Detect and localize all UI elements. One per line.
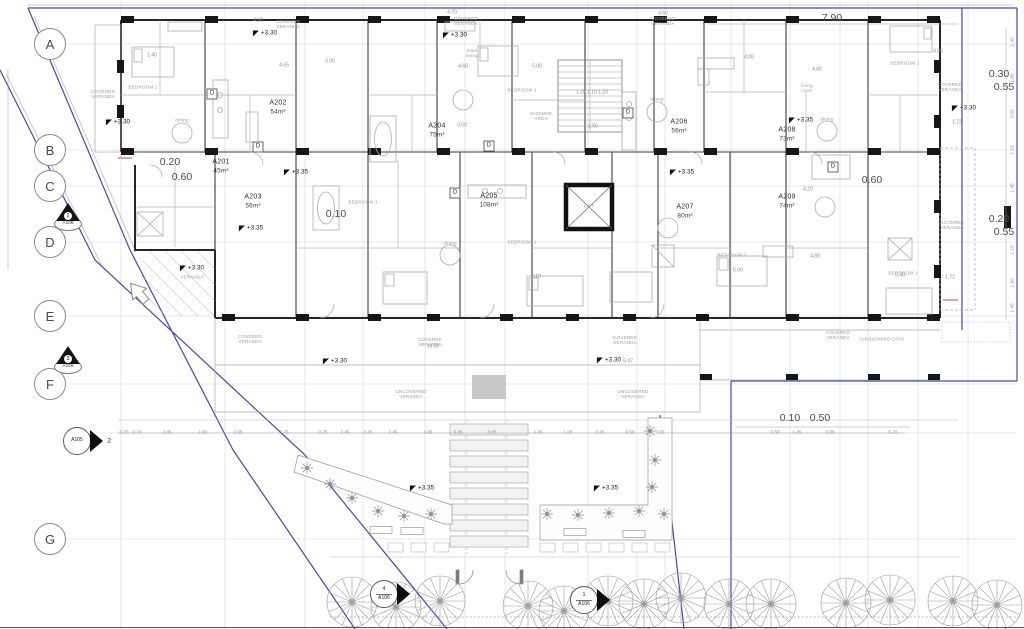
appliance-label: D: [207, 89, 218, 100]
direction-arrow-icon: [124, 278, 153, 308]
grid-bubble: D: [34, 226, 66, 258]
grid-bubble: C: [34, 170, 66, 202]
stairs: [558, 60, 622, 132]
grid-bubble: E: [34, 300, 66, 332]
lift-shaft: [566, 185, 612, 229]
dimension-lines: [8, 24, 1006, 433]
grid-bubble: B: [34, 134, 66, 166]
plan-linework: [0, 0, 1024, 629]
building-walls: [121, 20, 940, 318]
paving-slabs: [388, 543, 670, 552]
interior-partitions: [121, 20, 938, 248]
garden-path: [118, 375, 1020, 617]
appliance-label: D: [828, 162, 839, 173]
appliance-label: D: [623, 108, 634, 119]
grid-bubble: F: [34, 368, 66, 400]
verandas: [95, 25, 1010, 412]
grid-bubble: A: [34, 28, 66, 60]
appliance-label: D: [484, 141, 495, 152]
grid-bubble: G: [34, 523, 66, 555]
appliance-label: D: [450, 188, 461, 199]
garden-gates: [456, 570, 523, 584]
appliance-label: D: [253, 142, 264, 153]
floor-plan-sheet: ABCDEFGA20145m²A20254m²A20356m²A20475m²A…: [0, 0, 1024, 629]
door-swings: [150, 152, 822, 318]
